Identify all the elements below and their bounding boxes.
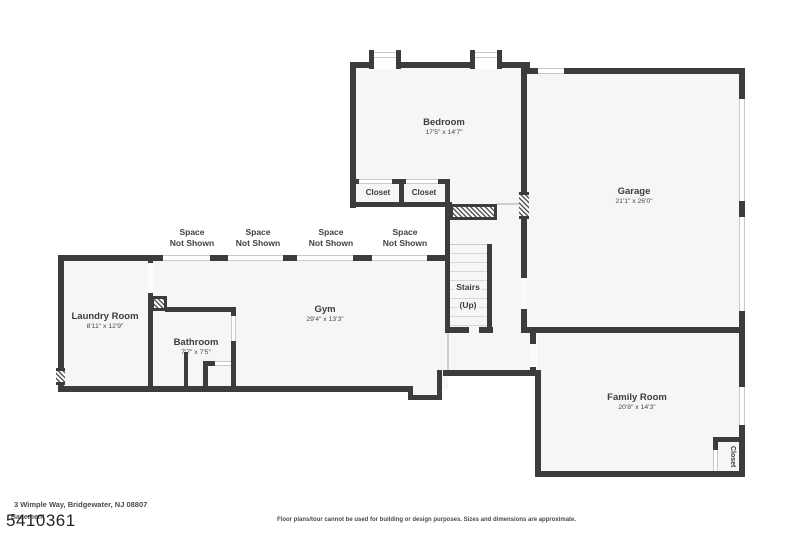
room-name: Family Room xyxy=(587,392,687,403)
room-dims: 29'4" x 13'3" xyxy=(275,315,375,324)
room-label-bedroom: Bedroom 17'5" x 14'7" xyxy=(394,117,494,137)
room-label-stairs: Stairs (Up) xyxy=(444,277,492,313)
closet-door-opening xyxy=(359,179,392,184)
wall xyxy=(535,471,745,477)
closet-label: Closet xyxy=(402,188,446,197)
window-icon xyxy=(372,255,427,261)
opening-line xyxy=(447,333,449,370)
room-dims: 7'7" x 7'5" xyxy=(146,348,246,357)
room-name: Bathroom xyxy=(146,337,246,348)
wall xyxy=(713,437,718,450)
space-not-shown-label: Space Not Shown xyxy=(296,227,366,249)
room-dims: 20'8" x 14'3" xyxy=(587,403,687,412)
window-icon xyxy=(228,255,283,261)
window-icon xyxy=(739,387,745,425)
room-name: Gym xyxy=(275,304,375,315)
wall xyxy=(350,202,452,207)
window-icon xyxy=(470,50,502,69)
space-not-shown-label: Space Not Shown xyxy=(370,227,440,249)
room-dims: 21'1" x 26'0" xyxy=(584,197,684,206)
room-label-garage: Garage 21'1" x 26'0" xyxy=(584,186,684,206)
mls-number-watermark: 5410361 xyxy=(6,512,76,530)
space-not-shown-label: Space Not Shown xyxy=(223,227,293,249)
closet-label-vertical: Closet xyxy=(720,443,736,471)
stairs-direction: (Up) xyxy=(458,300,479,311)
floorplan: Bedroom 17'5" x 14'7" Garage 21'1" x 26'… xyxy=(0,0,800,533)
room-label-gym: Gym 29'4" x 13'3" xyxy=(275,304,375,324)
wall xyxy=(203,361,208,389)
stairs-name: Stairs xyxy=(454,282,482,293)
laundry-exterior-door-hatch xyxy=(56,368,65,385)
wall xyxy=(521,327,745,333)
door-opening xyxy=(530,344,536,367)
property-address: 3 Wimple Way, Bridgewater, NJ 08807 xyxy=(14,500,147,509)
room-dims: 8'11" x 12'9" xyxy=(55,322,155,331)
wall xyxy=(530,333,536,344)
door-opening xyxy=(521,278,527,309)
stair-landing-hatch xyxy=(450,204,497,220)
closet-door-opening xyxy=(406,179,438,184)
wall xyxy=(184,352,188,389)
disclaimer-text: Floor plans/tour cannot be used for buil… xyxy=(277,517,576,523)
window-glass xyxy=(475,52,497,58)
room-name: Bedroom xyxy=(394,117,494,128)
room-label-family-room: Family Room 20'8" x 14'3" xyxy=(587,392,687,412)
window-icon xyxy=(163,255,210,261)
window-icon xyxy=(369,50,401,69)
window-glass xyxy=(374,52,396,58)
door-opening xyxy=(215,361,231,366)
room-name: Laundry Room xyxy=(55,311,155,322)
garage-entry-door-hatch xyxy=(519,192,529,219)
door-opening xyxy=(148,263,153,293)
wall xyxy=(350,62,356,208)
room-label-laundry: Laundry Room 8'11" x 12'9" xyxy=(55,311,155,331)
wall xyxy=(535,370,541,477)
closet-label: Closet xyxy=(356,188,400,197)
room-label-bathroom: Bathroom 7'7" x 7'5" xyxy=(146,337,246,357)
room-dims: 17'5" x 14'7" xyxy=(394,128,494,137)
wall xyxy=(165,307,236,312)
window-icon xyxy=(297,255,353,261)
window-icon xyxy=(538,68,564,74)
wall xyxy=(443,370,536,376)
room-name: Garage xyxy=(584,186,684,197)
garage-door-opening xyxy=(739,99,745,201)
wall xyxy=(437,370,442,400)
closet-door-opening xyxy=(713,450,718,471)
wall xyxy=(479,327,493,333)
space-not-shown-label: Space Not Shown xyxy=(157,227,227,249)
garage-door-opening xyxy=(739,217,745,311)
